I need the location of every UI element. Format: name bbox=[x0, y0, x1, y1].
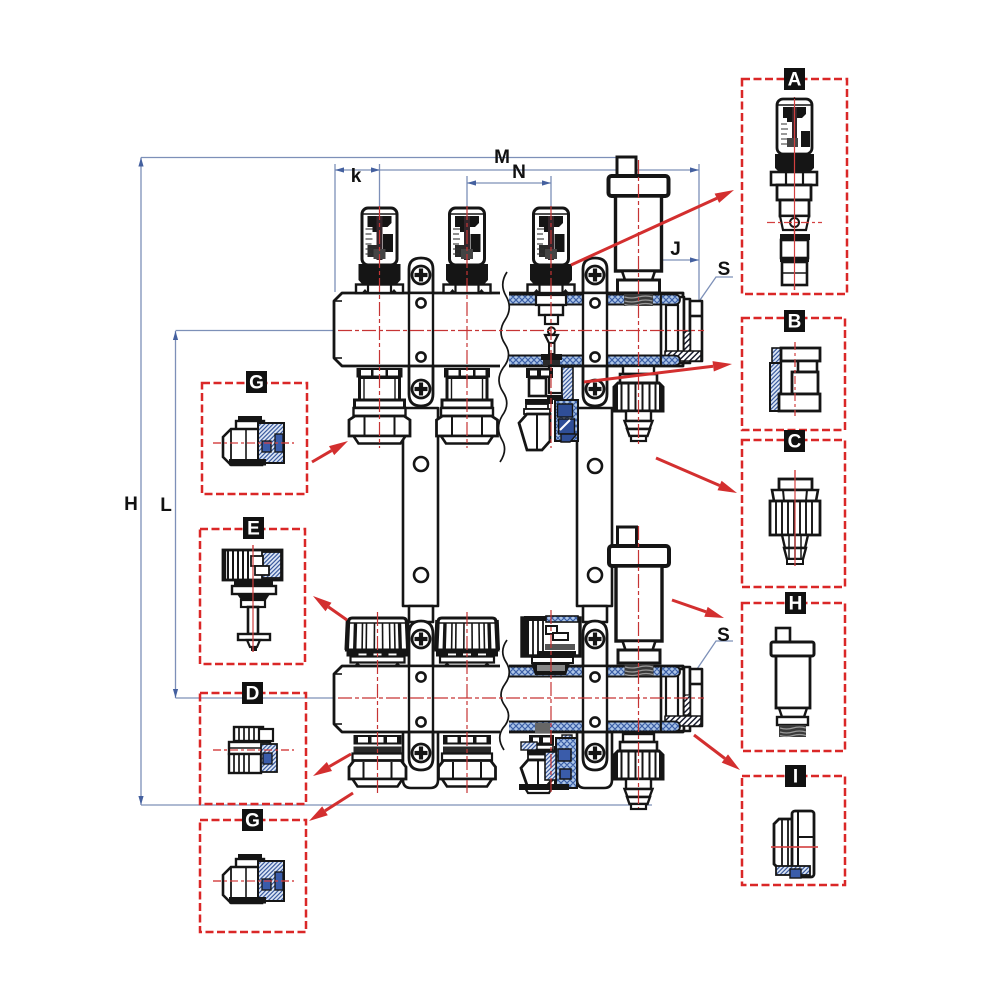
svg-text:N: N bbox=[512, 162, 526, 183]
svg-text:B: B bbox=[788, 312, 802, 333]
svg-text:H: H bbox=[789, 594, 803, 615]
svg-text:k: k bbox=[351, 166, 362, 187]
svg-text:J: J bbox=[670, 239, 681, 260]
svg-text:D: D bbox=[246, 684, 260, 705]
svg-text:G: G bbox=[245, 811, 260, 832]
svg-text:A: A bbox=[788, 70, 802, 91]
svg-text:G: G bbox=[249, 373, 264, 394]
svg-text:C: C bbox=[788, 432, 802, 453]
svg-text:E: E bbox=[247, 519, 260, 540]
svg-text:H: H bbox=[124, 494, 138, 515]
svg-text:S: S bbox=[718, 259, 731, 280]
svg-text:M: M bbox=[494, 147, 510, 168]
svg-text:L: L bbox=[160, 495, 172, 516]
svg-text:S: S bbox=[717, 625, 730, 646]
svg-text:I: I bbox=[793, 767, 798, 788]
